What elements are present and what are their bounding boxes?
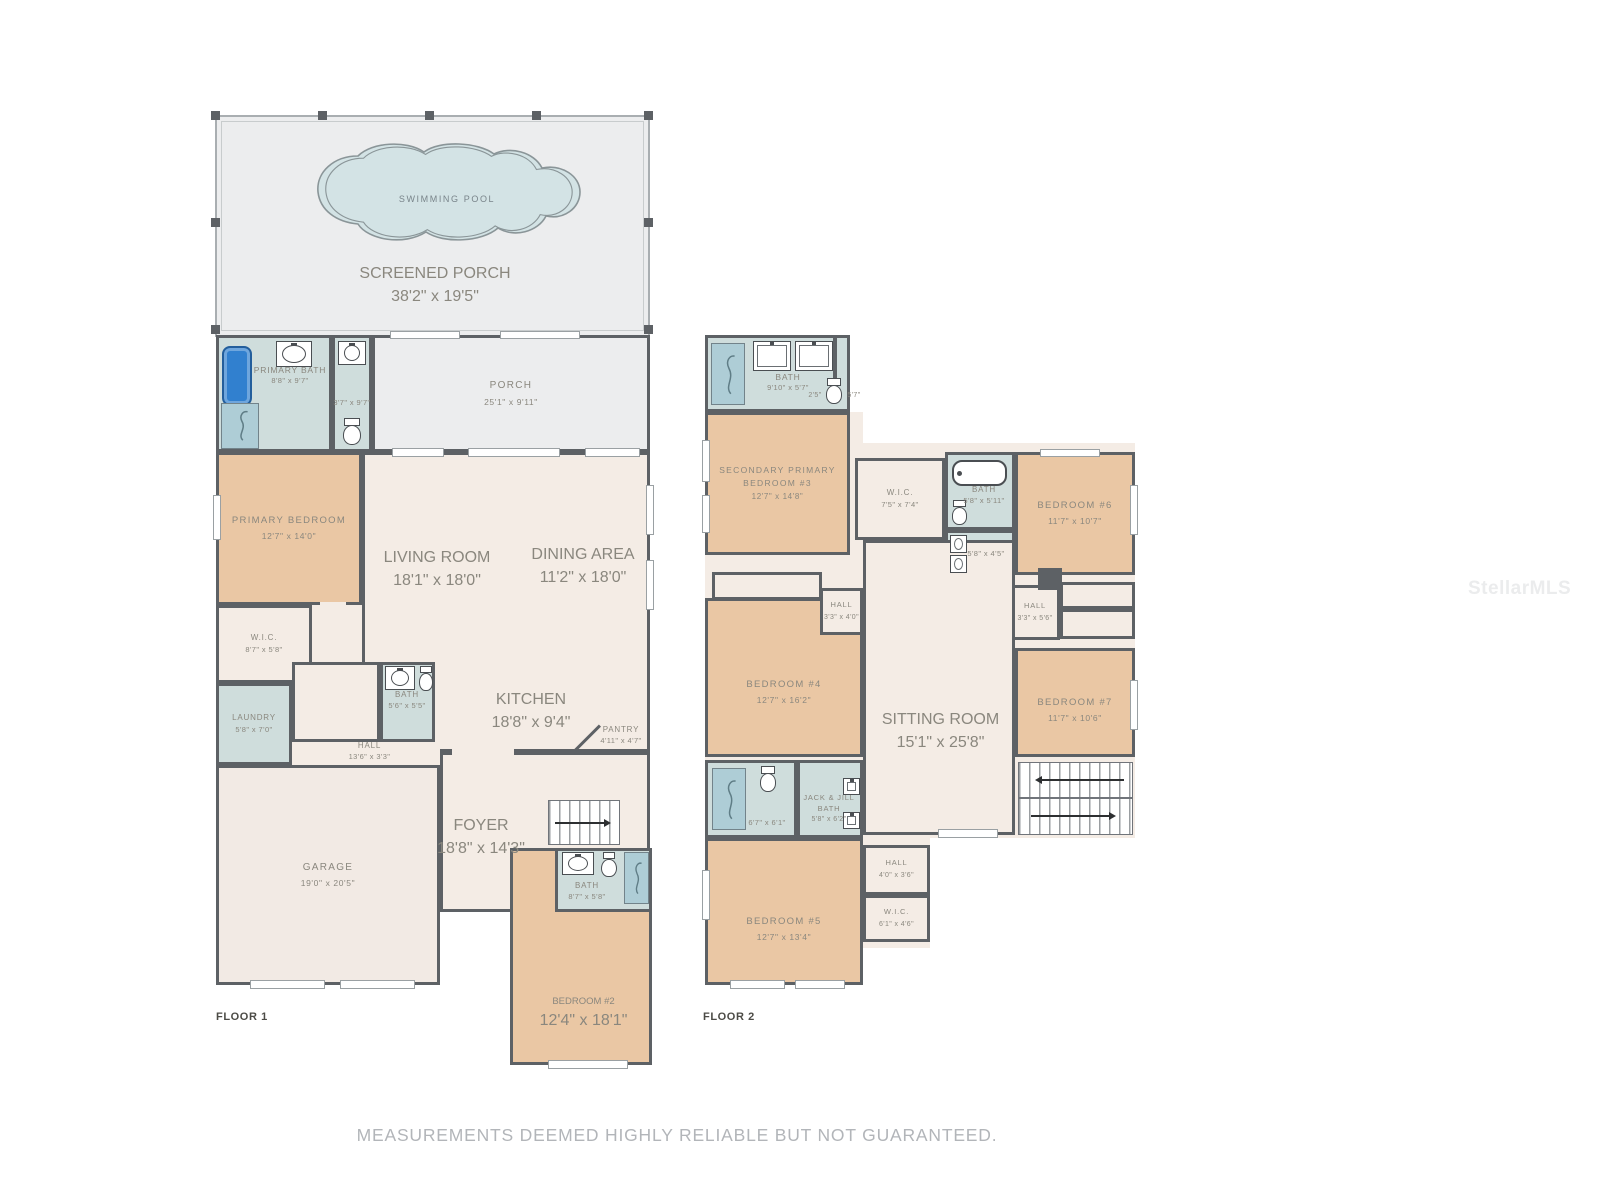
bedroom6-label: BEDROOM #6 11'7" x 10'7" [1037, 499, 1112, 527]
toilet-icon [341, 418, 363, 446]
wic-b-label: W.I.C. 6'1" x 4'6" [879, 907, 914, 930]
window [1040, 449, 1100, 457]
sink-icon [753, 341, 791, 371]
window [390, 331, 460, 339]
hall-floor1-label: HALL 13'6" x 3'3" [322, 740, 417, 762]
room-closet-b1 [1060, 582, 1135, 609]
toilet-icon [600, 852, 618, 878]
kitchen-label: KITCHEN 18'8" x 9'4" [478, 688, 584, 734]
room-bedroom-7: BEDROOM #7 11'7" x 10'6" [1015, 648, 1135, 757]
stair-direction-arrow [555, 822, 609, 824]
window [646, 560, 654, 610]
window [702, 440, 710, 482]
water-closet-label: 3'7" x 9'7" [328, 398, 376, 409]
primary-bedroom-label: PRIMARY BEDROOM 12'7" x 14'0" [232, 514, 346, 542]
stair-direction-arrow [1031, 815, 1114, 817]
swimming-pool [288, 128, 618, 258]
porch-post [532, 111, 541, 120]
door-opening [320, 602, 346, 612]
shower-icon [711, 343, 745, 405]
room-garage: GARAGE 19'0" x 20'5" [216, 765, 440, 985]
wic-label: W.I.C. 8'7" x 5'8" [245, 632, 282, 656]
sink-icon [338, 341, 366, 365]
stair-landing-divider [1019, 797, 1132, 799]
window [468, 448, 560, 457]
screened-porch-label: SCREENED PORCH 38'2" x 19'5" [330, 262, 540, 308]
stellar-mls-watermark: StellarMLS [1468, 578, 1571, 600]
garage-label: GARAGE 19'0" x 20'5" [301, 861, 355, 890]
window [1130, 680, 1138, 730]
room-hall-a-floor2: HALL 3'3" x 4'0" [820, 588, 863, 635]
porch-post [211, 218, 220, 227]
jack-jill-bath-label: JACK & JILL BATH 5'8" x 6'2" [797, 793, 861, 825]
garage-door [340, 980, 415, 989]
bedroom2-label: BEDROOM #2 12'4" x 18'1" [516, 995, 651, 1032]
bath-floor1-label: BATH 5'6" x 5'5" [378, 689, 436, 711]
room-primary-bedroom: PRIMARY BEDROOM 12'7" x 14'0" [216, 452, 362, 605]
window [795, 980, 845, 989]
staircase-floor2 [1018, 762, 1133, 835]
floor1-label: FLOOR 1 [216, 1011, 268, 1023]
room-sitting-room [863, 540, 1015, 835]
bath-mid-label: BATH 5'8" x 5'11" [955, 484, 1013, 506]
room-bedroom-3: SECONDARY PRIMARY BEDROOM #3 12'7" x 14'… [705, 412, 850, 555]
room-porch: PORCH 25'1" x 9'11" [372, 335, 650, 452]
sink-icon [562, 852, 594, 875]
porch-label: PORCH 25'1" x 9'11" [484, 379, 538, 408]
sink-icon [795, 341, 833, 371]
porch-post [318, 111, 327, 120]
room-closet-b2 [1060, 609, 1135, 639]
bedroom7-label: BEDROOM #7 11'7" x 10'6" [1037, 696, 1112, 724]
window [938, 829, 998, 838]
primary-bath-label: PRIMARY BATH 8'8" x 9'7" [246, 364, 334, 387]
bath2-floor1-label: BATH 8'7" x 5'8" [552, 880, 622, 902]
porch-post [644, 325, 653, 334]
window [646, 485, 654, 535]
window [213, 495, 221, 540]
wic-a-label: W.I.C. 7'5" x 7'4" [881, 487, 918, 511]
window [392, 448, 444, 457]
bedroom4-label: BEDROOM #4 12'7" x 16'2" [746, 678, 821, 706]
wc-dim-left: 2'5" [804, 391, 826, 401]
disclaimer-text: MEASUREMENTS DEEMED HIGHLY RELIABLE BUT … [177, 1125, 1177, 1146]
room-closet-strip [712, 572, 822, 600]
wall-stub [833, 335, 837, 381]
chase-block [1038, 568, 1062, 590]
shower-icon [221, 403, 259, 449]
room-hall-c-floor2: HALL 4'0" x 3'6" [863, 845, 930, 895]
room-hall-b-floor2: HALL 3'3" x 5'6" [1010, 585, 1060, 640]
toilet-icon [758, 766, 778, 793]
bathtub-icon [952, 460, 1007, 486]
porch-post [644, 111, 653, 120]
foyer-label: FOYER 18'8" x 14'3" [431, 814, 531, 860]
porch-post [211, 325, 220, 334]
garage-door [250, 980, 325, 989]
hall-a-label: HALL 3'3" x 4'0" [824, 600, 859, 623]
porch-post [644, 218, 653, 227]
room-closet-floor1 [292, 662, 380, 742]
porch-post [211, 111, 220, 120]
laundry-label: LAUNDRY 5'8" x 7'0" [232, 712, 276, 736]
room-bedroom-5: BEDROOM #5 12'7" x 13'4" [705, 838, 863, 985]
sitting-room-label: SITTING ROOM 15'1" x 25'8" [868, 708, 1013, 754]
shower-icon [624, 852, 649, 904]
floor2-label: FLOOR 2 [703, 1011, 755, 1023]
room-laundry: LAUNDRY 5'8" x 7'0" [216, 683, 292, 765]
sink-icon [385, 666, 415, 690]
closet-floor2-label: 5'8" x 4'5" [960, 549, 1012, 560]
window [702, 870, 710, 920]
hall-c-label: HALL 4'0" x 3'6" [879, 858, 914, 881]
bedroom3-label: SECONDARY PRIMARY BEDROOM #3 12'7" x 14'… [719, 464, 836, 502]
staircase-floor1 [548, 800, 620, 845]
stair-direction-arrow [1037, 779, 1124, 781]
swimming-pool-label: SWIMMING POOL [372, 194, 522, 204]
window [548, 1060, 628, 1069]
porch-post [425, 111, 434, 120]
door-opening [452, 749, 514, 758]
window [702, 495, 710, 533]
bath-c-label: 6'7" x 6'1" [738, 818, 796, 829]
living-room-label: LIVING ROOM 18'1" x 18'0" [382, 546, 492, 592]
window [730, 980, 785, 989]
wc-dim-right: 5'7" [843, 391, 865, 401]
toilet-icon [418, 666, 434, 691]
room-wic-a-floor2: W.I.C. 7'5" x 7'4" [855, 458, 945, 540]
window [1130, 485, 1138, 535]
bedroom5-label: BEDROOM #5 12'7" x 13'4" [746, 915, 821, 943]
pantry-label: PANTRY 4'11" x 4'7" [589, 724, 653, 746]
window [585, 448, 640, 457]
dining-area-label: DINING AREA 11'2" x 18'0" [528, 543, 638, 589]
window [500, 331, 580, 339]
floor-plan-page: SWIMMING POOL SCREENED PORCH 38'2" x 19'… [0, 0, 1600, 1200]
room-bedroom-6: BEDROOM #6 11'7" x 10'7" [1015, 452, 1135, 575]
hall-b-label: HALL 3'3" x 5'6" [1017, 601, 1052, 624]
room-wic-b-floor2: W.I.C. 6'1" x 4'6" [863, 895, 930, 942]
